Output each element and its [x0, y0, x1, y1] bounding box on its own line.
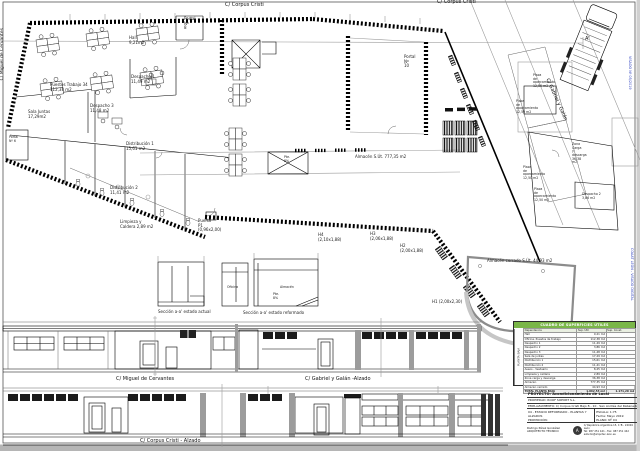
street-label-miguel: C/ Miguel de Cervantes [0, 28, 5, 80]
titleblock-contact3: estudio@arquitec-leon.es [584, 433, 637, 436]
architectural-plan-sheet: C/ Corpus Cristi C/ Corpus Cristi C/ Mig… [0, 0, 640, 451]
interior-walls [6, 16, 618, 230]
label-sala-juntas: Sala Juntas 17,29m2 [28, 110, 50, 119]
label-window-h4: H4 (2,10x1,88) [318, 233, 341, 242]
label-hall: Hall 9,21m2 [129, 36, 144, 45]
areas-table: CUADRO DE SUPERFICIES ÚTILES PLANTA BAJA… [513, 321, 636, 386]
sheet-right-margin [637, 0, 640, 451]
truck [557, 2, 621, 92]
label-window-h2: H2 (2,00x1,88) [400, 244, 423, 253]
label-puestos-trabajo: Puestos Trabajo 34 112,38 m2 [50, 83, 88, 92]
label-section-reformado: Sección a-a' estado reformado [243, 311, 304, 316]
label-portal-10: Portal Nº 10 [404, 55, 416, 69]
warehouse [140, 55, 490, 317]
label-elevation-gabriel: C/ Gabriel y Galán -Alzado [305, 377, 371, 383]
areas-table-zone: PLANTA BAJA [514, 329, 522, 385]
door-swings [120, 40, 559, 216]
label-section-almacen: Almacén [280, 286, 294, 290]
label-despacho-1: Despacho 1 11,49 m2 [131, 75, 155, 84]
label-almacen-cerrado: Almacén cerrado S.Út. 44,93 m2 [487, 259, 552, 264]
elevation-corpus [3, 384, 508, 447]
label-puerta-p1: Puerta P1 (0,96x2,00) [198, 219, 221, 233]
street-label-corpus-right: C/ Corpus Cristi [437, 0, 476, 6]
label-despacho-3: Despacho 3 11,48 m2 [90, 104, 114, 113]
label-parking-3: Plaza de aparcamiento 12,50 m2 [523, 166, 545, 181]
label-limpieza: Limpieza y Caldera 2,89 m2 [120, 220, 153, 229]
label-section-marker-a: A' [585, 37, 590, 43]
label-section-actual: Sección a-a' estado actual [158, 310, 211, 315]
label-portal-6: Portal Nº 6 [9, 136, 18, 143]
section-drawings [158, 253, 318, 306]
label-window-h1: H1 (2,00x2,30) [432, 300, 462, 305]
label-parking-2: Plaza de aparcamiento 12,50 m2 [516, 100, 538, 115]
titleblock-cargo: ARQUITECTO TÉCNICO [527, 430, 571, 433]
street-label-corpus-left: C/ Corpus Cristi [225, 3, 264, 9]
bathroom-fixtures [76, 174, 190, 226]
titleblock-plano: PLANO: Nº 04 [596, 418, 636, 422]
label-parking-1: Plaza de aparcamiento 12,50 m2 [533, 74, 555, 89]
watermark-visado-top: VISADO Nº 05/2019 [627, 56, 631, 90]
label-zona-carga: Zona Carga y descarga 36,38 m2 [572, 143, 587, 165]
label-elevation-corpus: C/ Corpus Cristi - Alzado [140, 439, 201, 445]
elevation-miguel-gabriel [3, 316, 481, 377]
label-despacho-2: Despacho 2 3,86 m2 [582, 193, 601, 200]
label-distribucion-2: Distribución 2 11,41 m2 [110, 186, 138, 195]
architect-stamp: A [573, 426, 582, 435]
label-section-oficina: Oficina [227, 286, 238, 290]
label-ramp-slope: Pte. 8% [284, 156, 290, 163]
label-distribucion-1: Distribución 1 15,61 m2 [126, 142, 154, 151]
watermark-visado-side: COAAT LEÓN - VISADO DIGITAL [629, 248, 633, 301]
label-almacen: Almacén S.Út. 777,35 m2 [355, 155, 406, 160]
label-parking-4: Plaza de aparcamiento 12,50 m2 [534, 188, 556, 203]
label-window-h3: H3 (2,06x1,88) [370, 232, 393, 241]
title-block: PROYECTO: Acondicionamiento de Local PRO… [527, 392, 637, 444]
label-section-pte: Pte. 8% [273, 293, 279, 300]
titleblock-contenido: 04 - ESTADO REFORMADO - PLANTAS Y ALZADO… [528, 410, 593, 418]
titleblock-promocion: PROMOCIÓN: [528, 418, 593, 422]
label-elevation-miguel: C/ Miguel de Cervantes [116, 377, 174, 383]
label-portal-8: Portal Nº 8 [184, 17, 196, 31]
